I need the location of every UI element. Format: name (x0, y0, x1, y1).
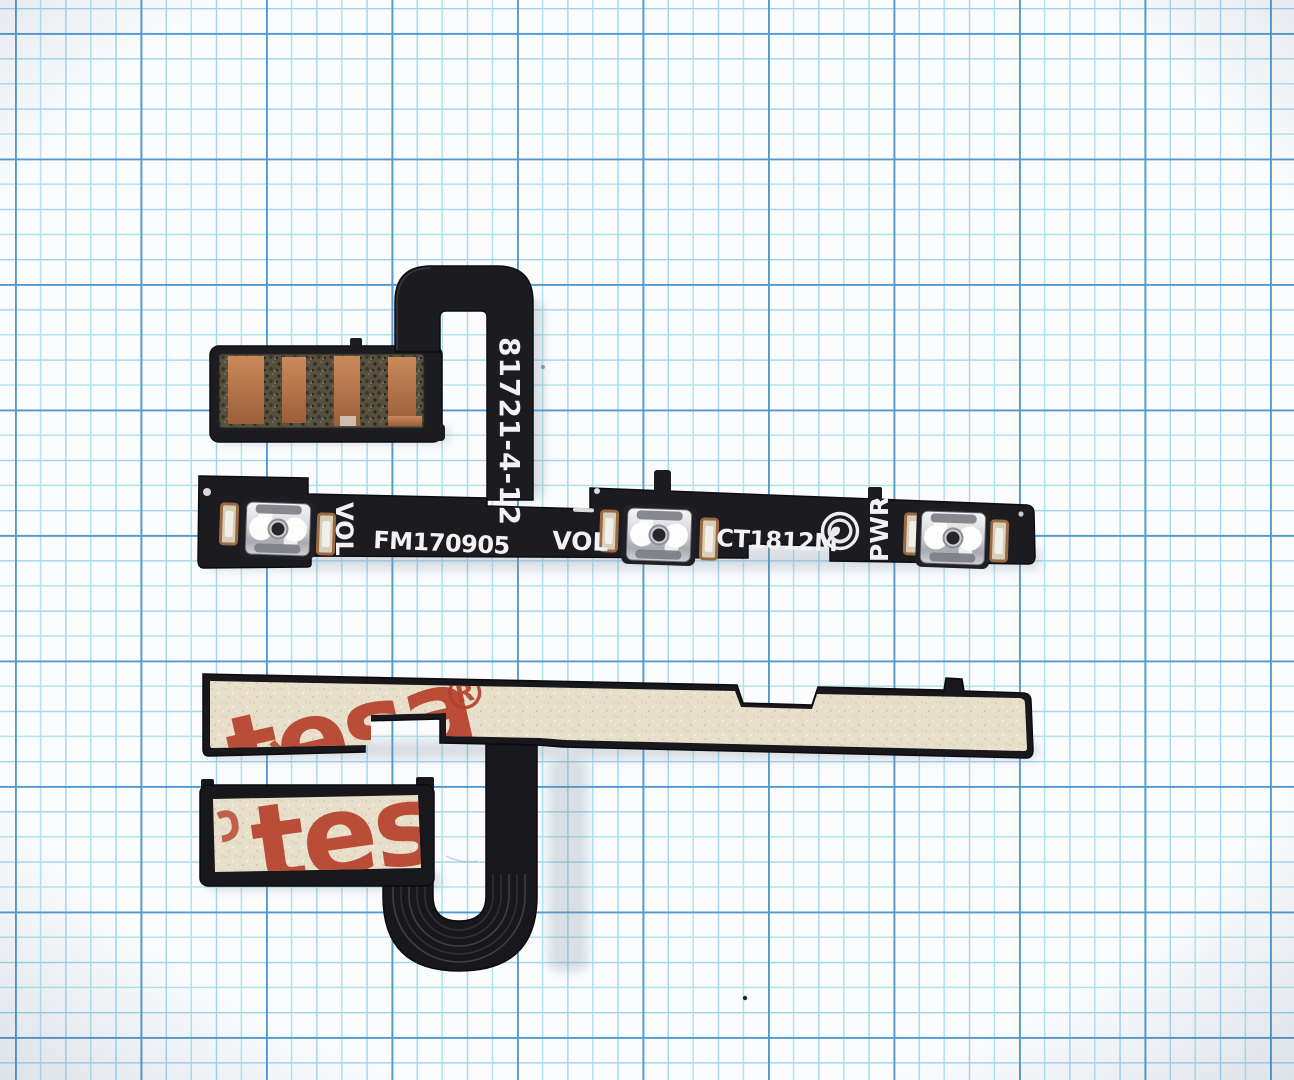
vignette-overlay (0, 0, 1294, 1080)
photo-canvas: 81721-4-12 VOL FM170905 VOL CT1812M PWR (0, 0, 1294, 1080)
